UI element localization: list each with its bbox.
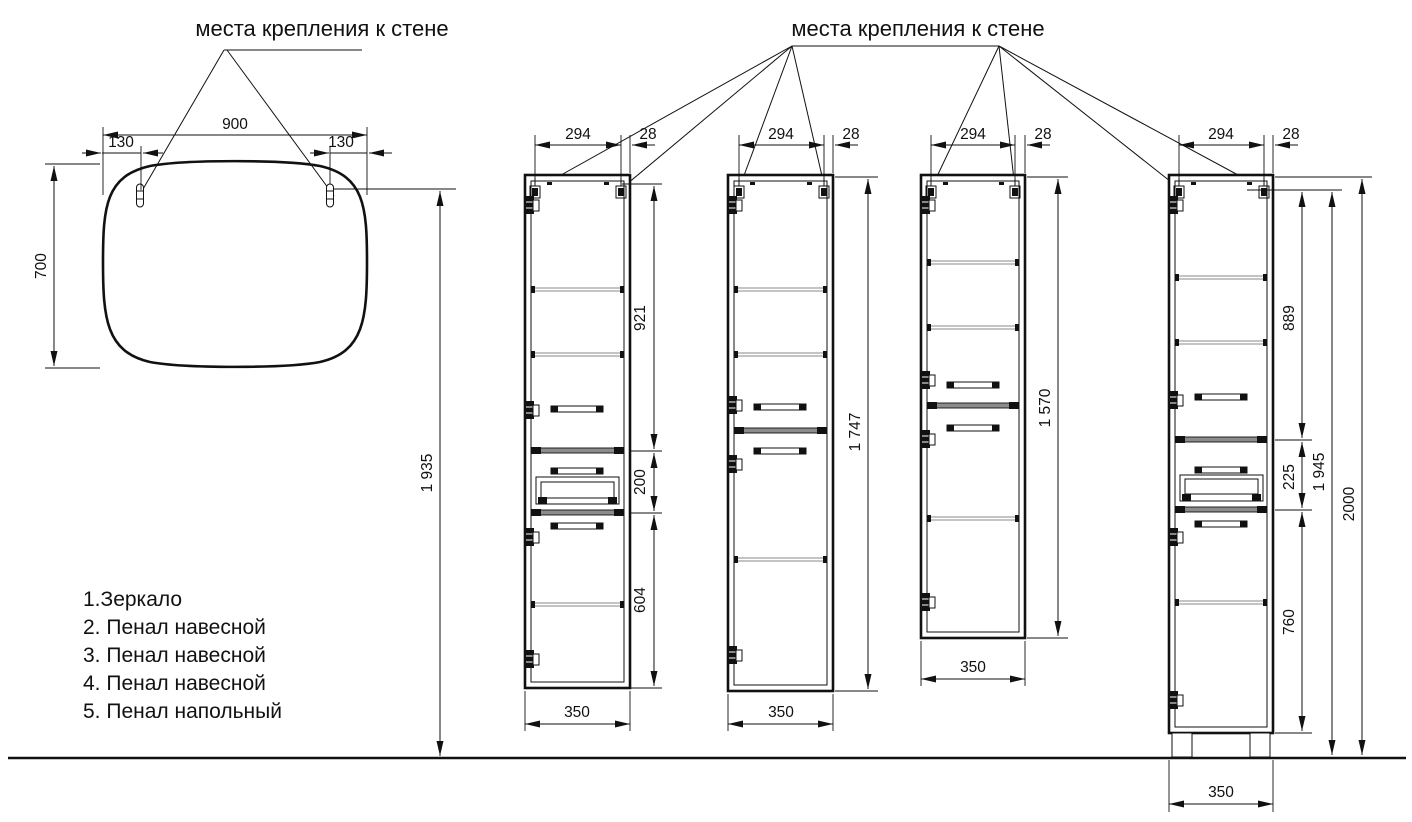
leader-line — [792, 46, 825, 189]
dim-cab2-width: 350 — [525, 691, 630, 731]
door-handle — [1195, 521, 1247, 527]
legend-item-cabinet-5: 5. Пенал напольный — [83, 700, 282, 723]
divider-band — [531, 510, 624, 515]
legend-item-cabinet-3: 3. Пенал навесной — [83, 644, 266, 667]
cabinet-leg — [1172, 733, 1192, 757]
dim-cab4-edge-offset: 28 — [1027, 126, 1052, 145]
dim-label: 760 — [1281, 609, 1298, 635]
dim-cab5-edge-offset: 28 — [1275, 126, 1300, 145]
dim-label: 2000 — [1341, 486, 1358, 521]
dim-label: 1 570 — [1037, 388, 1054, 427]
door-handle — [551, 406, 603, 412]
cabinet-4-group: 294 28 1 570 350 — [921, 126, 1068, 686]
dim-mirror-width: 900 — [103, 116, 367, 195]
dim-label: 28 — [639, 126, 656, 143]
divider-band — [1175, 437, 1267, 442]
dim-mirror-height: 700 — [33, 164, 100, 368]
door-handle — [947, 425, 999, 431]
drawer-handle — [551, 468, 603, 474]
dim-label: 700 — [33, 253, 50, 279]
dim-label: 294 — [768, 126, 794, 143]
dim-label: 28 — [1282, 126, 1299, 143]
dim-label: 350 — [960, 659, 986, 676]
furniture-technical-drawing: места крепления к стене места крепления … — [0, 0, 1412, 822]
dim-cab3-edge-offset: 28 — [835, 126, 860, 145]
divider-band — [531, 448, 624, 453]
dim-label: 350 — [768, 704, 794, 721]
divider-band — [927, 403, 1019, 408]
mirror-mount-right-icon — [327, 184, 334, 207]
dim-label: 604 — [632, 587, 649, 613]
cabinets-mount-label: места крепления к стене — [791, 16, 1044, 41]
leader-line — [139, 50, 224, 196]
drawer-handle — [1195, 467, 1247, 473]
dim-label: 900 — [222, 116, 248, 133]
dim-label: 200 — [632, 469, 649, 495]
legend: 1.Зеркало 2. Пенал навесной 3. Пенал нав… — [83, 588, 282, 723]
cabinet-5-group: 294 28 889 225 760 1 945 2000 — [1169, 126, 1372, 812]
dim-cab4-height: 1 570 — [1027, 177, 1068, 638]
dim-label: 28 — [842, 126, 859, 143]
cabinet-2-group: 294 28 921 200 604 350 — [525, 126, 662, 731]
dim-label: 28 — [1034, 126, 1051, 143]
dim-cab2-edge-offset: 28 — [632, 126, 657, 145]
legend-item-cabinet-4: 4. Пенал навесной — [83, 672, 266, 695]
mirror-mount-left-icon — [137, 184, 144, 207]
dim-mirror-mount-height: 1 935 — [333, 189, 456, 756]
legend-item-cabinet-2: 2. Пенал навесной — [83, 616, 266, 639]
dim-label: 130 — [108, 134, 134, 151]
door-handle — [1195, 394, 1247, 400]
door-handle — [551, 523, 603, 529]
dim-label: 294 — [565, 126, 591, 143]
dim-label: 225 — [1281, 464, 1298, 490]
dim-cab4-width: 350 — [921, 641, 1025, 686]
dim-cab3-height: 1 747 — [835, 177, 878, 691]
divider-band — [1175, 507, 1267, 512]
leader-line — [621, 46, 792, 189]
cabinet-outline — [1169, 175, 1273, 733]
drawing-canvas: места крепления к стене места крепления … — [0, 0, 1412, 822]
dim-label: 294 — [1208, 126, 1234, 143]
cabinets-mount-callout: места крепления к стене — [536, 16, 1264, 189]
dim-label: 350 — [1208, 784, 1234, 801]
dim-cab3-width: 350 — [728, 694, 833, 731]
dim-mirror-offset-left: 130 — [82, 134, 163, 190]
dim-mirror-offset-right: 130 — [310, 134, 392, 184]
cabinet-leg — [1250, 733, 1270, 757]
leader-line — [999, 46, 1015, 189]
divider-band — [734, 428, 827, 433]
dim-label: 1 747 — [847, 413, 864, 452]
door-handle — [754, 404, 806, 410]
dim-cab5-width: 350 — [1169, 760, 1273, 812]
mirror-mount-label: места крепления к стене — [195, 16, 448, 41]
dim-label: 921 — [632, 305, 649, 331]
dim-label: 1 945 — [1311, 453, 1328, 492]
leader-line — [536, 46, 792, 189]
leader-line — [931, 46, 999, 189]
door-handle — [754, 448, 806, 454]
door-handle — [947, 382, 999, 388]
dim-label: 294 — [960, 126, 986, 143]
dim-label: 350 — [564, 704, 590, 721]
cabinet-outline — [525, 175, 630, 688]
leader-line — [999, 46, 1180, 189]
dim-label: 889 — [1281, 305, 1298, 331]
dim-label: 130 — [328, 134, 354, 151]
legend-item-mirror: 1.Зеркало — [83, 588, 182, 611]
dim-label: 1 935 — [419, 454, 436, 493]
leader-line — [739, 46, 792, 189]
mirror-mount-callout: места крепления к стене — [139, 16, 449, 196]
leader-line — [999, 46, 1264, 189]
cabinet-3-group: 294 28 1 747 350 — [728, 126, 878, 731]
